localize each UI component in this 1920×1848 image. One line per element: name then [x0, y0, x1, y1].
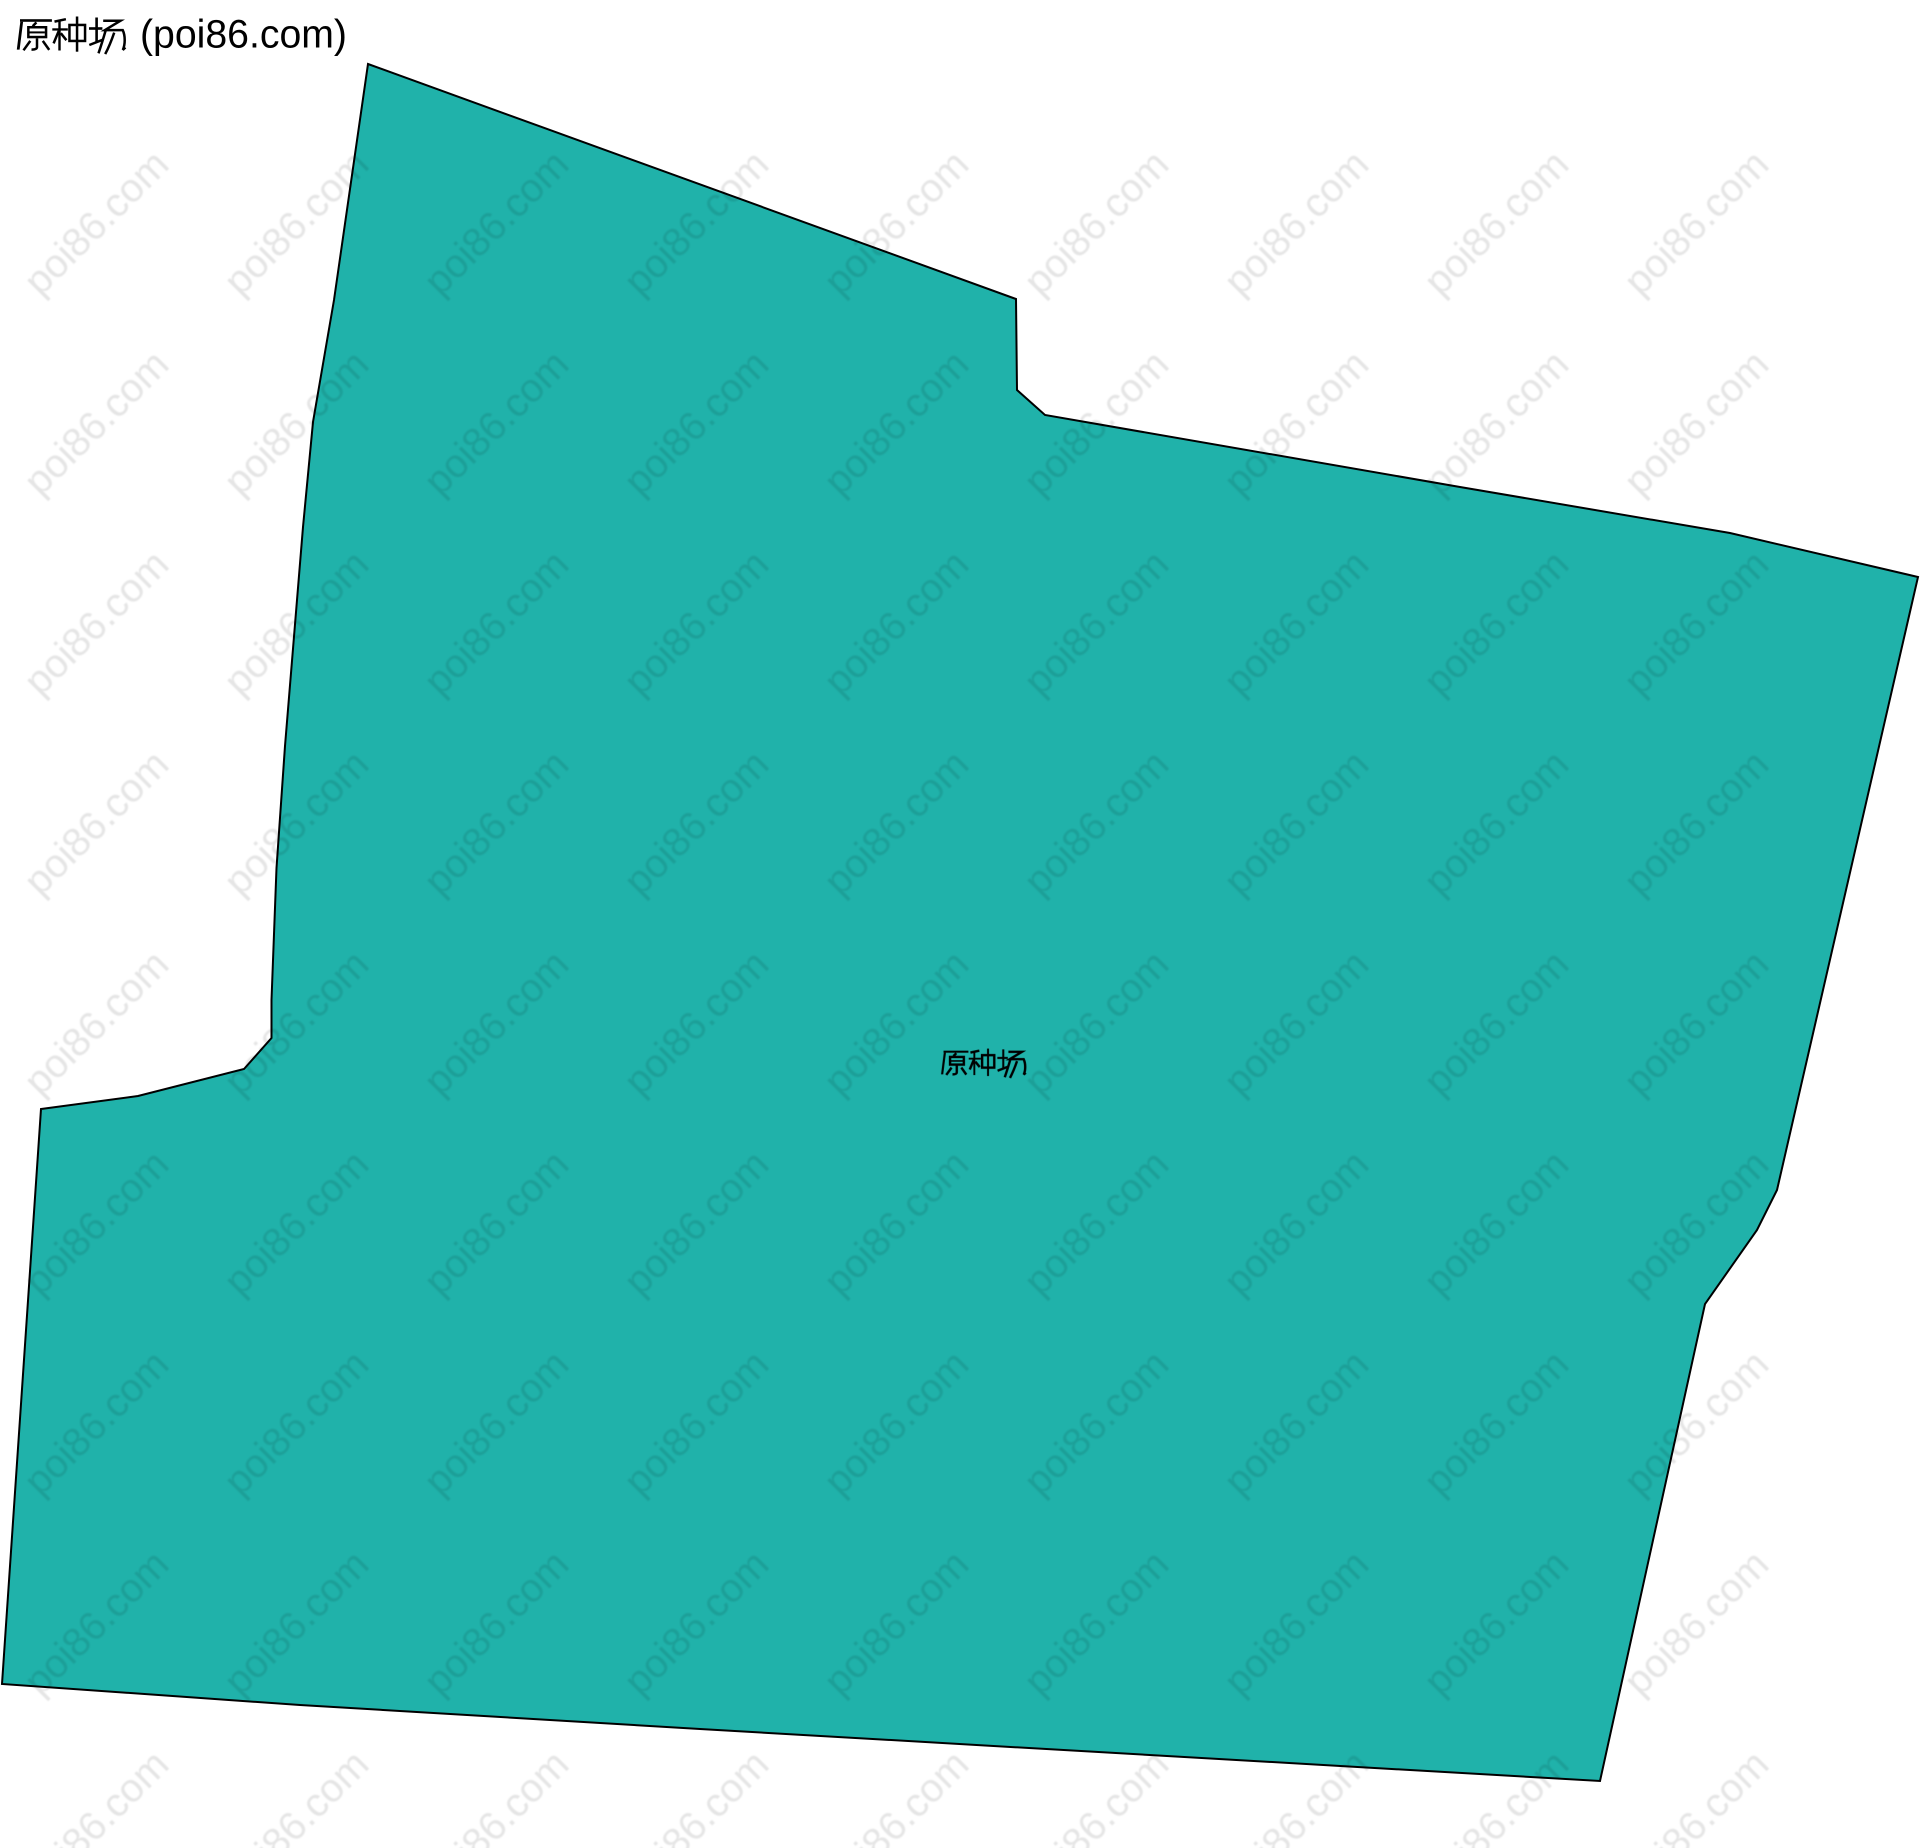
svg-text:(poi86.com): (poi86.com)	[140, 13, 347, 57]
